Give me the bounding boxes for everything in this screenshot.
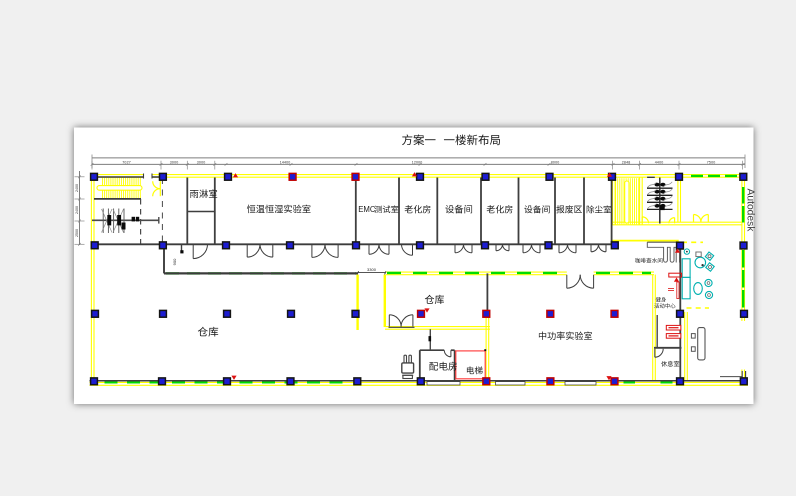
svg-text:4400: 4400 [655,160,663,164]
svg-text:8000: 8000 [551,160,559,164]
svg-text:3000: 3000 [170,160,178,164]
svg-text:14400: 14400 [280,160,291,164]
svg-text:7027: 7027 [122,160,130,164]
svg-text:2400: 2400 [75,206,79,214]
svg-text:3000: 3000 [197,160,205,164]
svg-text:2400: 2400 [75,184,79,192]
svg-text:7500: 7500 [707,160,715,164]
svg-text:12000: 12000 [412,160,423,164]
svg-text:2500: 2500 [75,229,79,237]
svg-text:Autodesk: Autodesk [745,189,756,233]
svg-text:2848: 2848 [622,160,630,164]
svg-text:3300: 3300 [367,267,377,272]
svg-text:EMC: EMC [358,205,376,214]
svg-text:900: 900 [172,258,177,265]
